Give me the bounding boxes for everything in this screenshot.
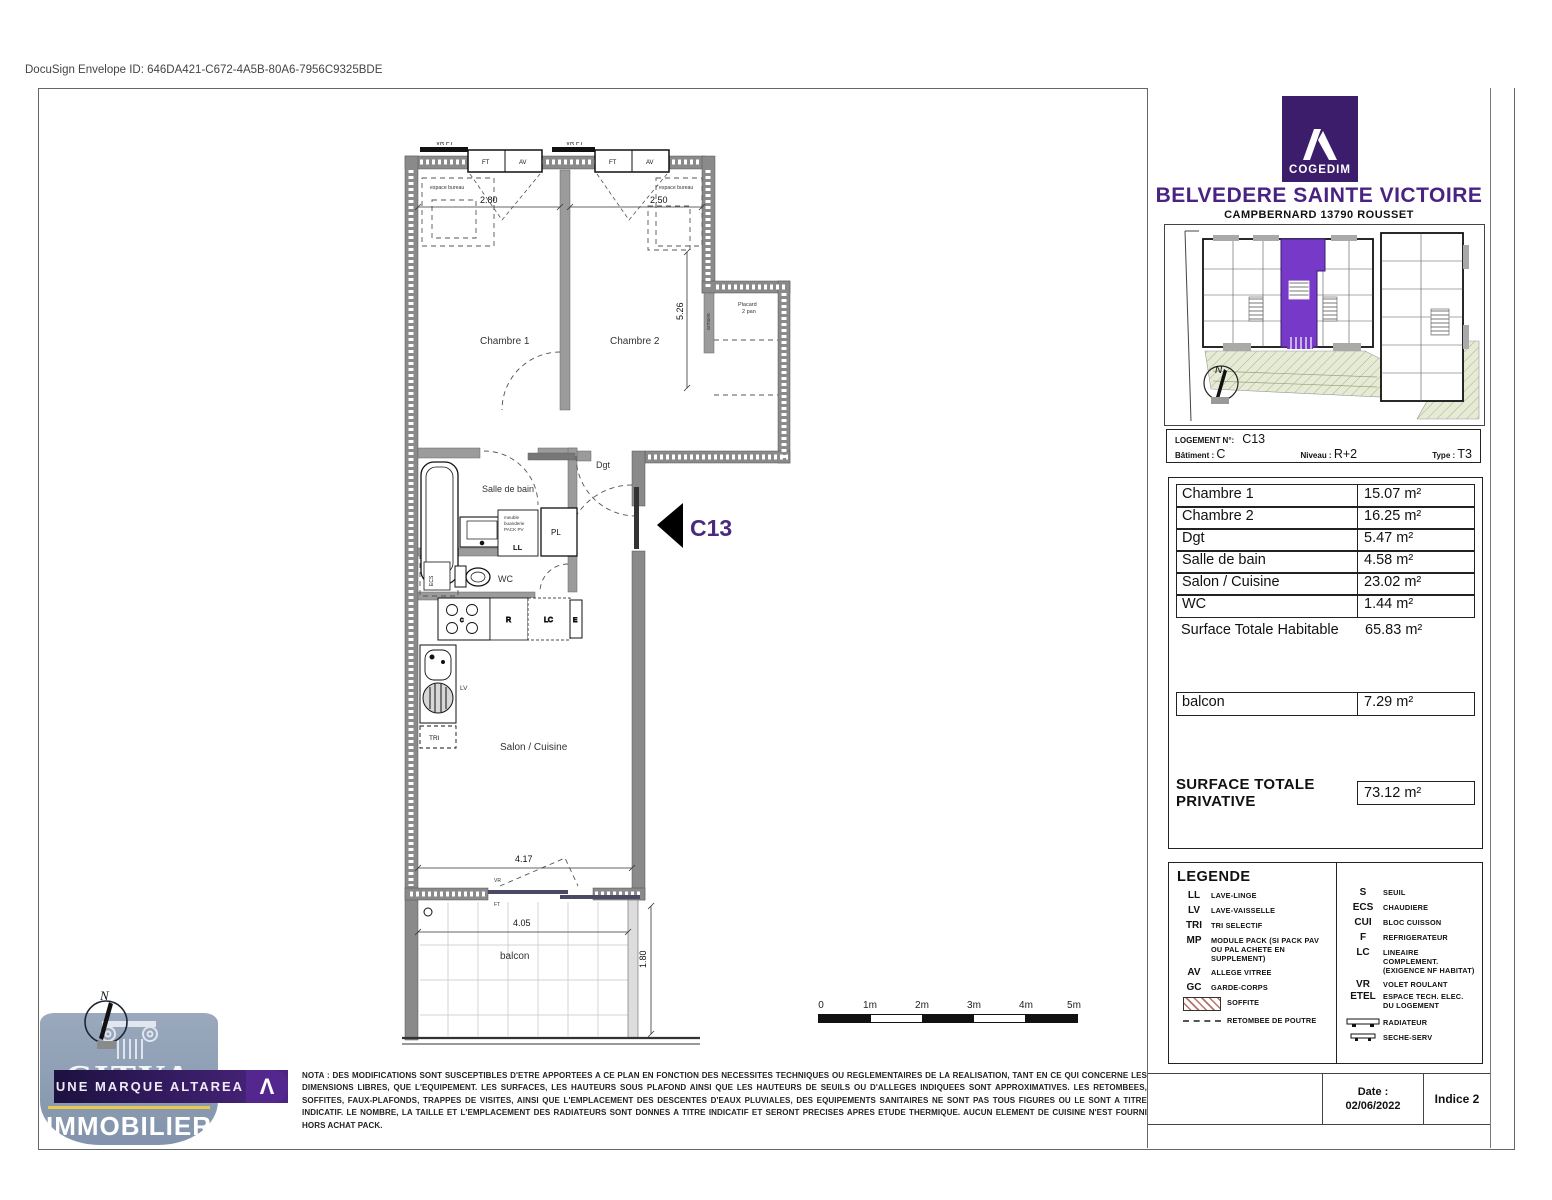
radiateur-icon <box>1346 1018 1380 1028</box>
tri-box: TRI <box>420 726 456 748</box>
ll-label: LL <box>513 543 523 552</box>
svg-text:TRI: TRI <box>429 735 440 742</box>
project-title: BELVEDERE SAINTE VICTOIRE <box>1148 184 1490 208</box>
docusign-envelope-id: DocuSign Envelope ID: 646DA421-C672-4A5B… <box>25 64 382 76</box>
niveau-value: R+2 <box>1334 447 1357 461</box>
wc-room-label: WC <box>498 574 513 584</box>
citya-gold-line <box>48 1106 210 1109</box>
legend-box: LEGENDE LLLAVE-LINGE LVLAVE-VAISSELLE TR… <box>1168 862 1483 1064</box>
surface-privative-label: SURFACE TOTALE PRIVATIVE <box>1176 776 1357 810</box>
retombee-dash-icon <box>1183 1020 1221 1022</box>
water-heater: ECS <box>424 562 450 590</box>
chambre1-label: Chambre 1 <box>480 336 530 347</box>
table-row: Salle de bain4.58 m² <box>1176 550 1475 574</box>
altarea-banner-text: UNE MARQUE ALTAREA <box>54 1070 246 1103</box>
logement-label: LOGEMENT N°: <box>1175 436 1234 445</box>
surface-habitable-label: Surface Totale Habitable <box>1176 620 1359 640</box>
cogedim-logo-word: COGEDIM <box>1289 164 1351 176</box>
type-label: Type : <box>1432 451 1455 460</box>
cogedim-logo: COGEDIM <box>1282 96 1358 182</box>
kitchen-units: C R LC E <box>438 598 582 640</box>
logement-value: C13 <box>1242 432 1265 446</box>
balcon-row: balcon 7.29 m² <box>1176 692 1475 716</box>
scale-bar: 0 1m 2m 3m 4m 5m <box>818 1000 1078 1023</box>
av-label-2: AV <box>646 160 654 166</box>
chambre2-label: Chambre 2 <box>610 336 660 347</box>
seche-serviette-label: SECHE-SERV <box>1383 1032 1432 1042</box>
areas-box: Chambre 115.07 m² Chambre 216.25 m² Dgt5… <box>1168 477 1483 849</box>
surface-habitable-value: 65.83 m² <box>1359 620 1475 640</box>
soffite-swatch-icon <box>1183 997 1221 1011</box>
panel-inner-border <box>1490 88 1491 1148</box>
indice-value: Indice 2 <box>1435 1092 1480 1106</box>
date-cell: Date : 02/06/2022 <box>1323 1074 1424 1124</box>
toilet <box>455 566 490 587</box>
altarea-banner: UNE MARQUE ALTAREA Λ <box>54 1070 288 1103</box>
soffite-label: SOFFITE <box>1227 997 1259 1007</box>
altarea-lambda-icon: Λ <box>246 1070 288 1103</box>
scale-bar-segments <box>818 1014 1078 1023</box>
espace-bureau-1: espace bureau <box>430 185 464 191</box>
unit-id-label: C13 <box>690 515 732 541</box>
r-label: R <box>506 617 511 624</box>
retombee-label: RETOMBEE DE POUTRE <box>1227 1015 1316 1025</box>
vr-ft-label-2: VR FT <box>566 142 584 147</box>
date-value: 02/06/2022 <box>1345 1099 1400 1113</box>
project-address: CAMPBERNARD 13790 ROUSSET <box>1148 209 1490 221</box>
surface-privative-row: SURFACE TOTALE PRIVATIVE 73.12 m² <box>1176 776 1475 810</box>
compass-north-label: N <box>99 988 110 1003</box>
keyplan-north-label: N <box>1215 365 1223 376</box>
type-value: T3 <box>1457 447 1472 461</box>
sdb-label: Salle de bain <box>482 484 534 494</box>
document-page: DocuSign Envelope ID: 646DA421-C672-4A5B… <box>0 0 1552 1200</box>
legend-title: LEGENDE <box>1177 869 1332 885</box>
placard-label-2: 2 pan <box>742 309 756 315</box>
entry-arrow <box>657 503 683 548</box>
batiment-label: Bâtiment : <box>1175 451 1214 460</box>
dgt-label: Dgt <box>596 460 611 470</box>
entry-door-leaf <box>634 487 639 549</box>
seche-serviette-icon <box>1350 1033 1376 1042</box>
vr-ft-label-1: VR FT <box>436 142 454 147</box>
plan-compass: N <box>76 986 136 1054</box>
dim-2-80: 2.80 <box>480 195 498 205</box>
dim-1-80: 1.80 <box>638 950 648 968</box>
floor-plan: VR FT FT AV VR FT FT AV espace bureau es… <box>398 142 810 1047</box>
dim-5-26: 5.26 <box>675 302 685 320</box>
svg-text:PACK PV: PACK PV <box>504 527 525 532</box>
table-row: Chambre 216.25 m² <box>1176 506 1475 530</box>
revision-empty-cell <box>1148 1074 1323 1124</box>
scale-bar-labels: 0 1m 2m 3m 4m 5m <box>818 1000 1078 1014</box>
vanity-sink <box>460 517 504 547</box>
av-label-1: AV <box>519 160 527 166</box>
placard-label-1: Placard <box>738 302 757 308</box>
pl-label: PL <box>551 528 561 537</box>
site-boundary <box>1185 231 1199 421</box>
balcon-value: 7.29 m² <box>1358 692 1475 716</box>
table-row: Dgt5.47 m² <box>1176 528 1475 552</box>
lv-label: LV <box>460 685 468 692</box>
radiateur-label: RADIATEUR <box>1383 1017 1427 1027</box>
svg-text:buanderie: buanderie <box>504 521 525 526</box>
legend-right-column: SSEUIL ECSCHAUDIERE CUIBLOC CUISSON FREF… <box>1337 863 1482 1063</box>
closet-pl: PL <box>541 508 577 556</box>
balcon-label: balcon <box>1176 692 1358 716</box>
nota-text: NOTA : DES MODIFICATIONS SONT SUSCEPTIBL… <box>302 1070 1147 1132</box>
key-plan: N <box>1164 224 1485 426</box>
ft-label-2: FT <box>609 160 617 166</box>
niveau-label: Niveau : <box>1300 451 1331 460</box>
citya-immobilier-word: IMMOBILIER <box>40 1111 218 1142</box>
lc-label: LC <box>544 617 553 624</box>
balcon-label: balcon <box>500 951 529 962</box>
window-bay-1: VR FT FT AV <box>420 142 542 220</box>
ecs-label: ECS <box>429 575 435 586</box>
dim-2-50: 2.50 <box>650 195 668 205</box>
ft-label-1: FT <box>482 160 490 166</box>
balcony <box>402 900 700 1044</box>
batiment-value: C <box>1216 447 1225 461</box>
balcony-sliding-door: VR FT <box>488 858 640 908</box>
title-block-panel: COGEDIM BELVEDERE SAINTE VICTOIRE CAMPBE… <box>1147 88 1514 1148</box>
table-row: Chambre 115.07 m² <box>1176 484 1475 508</box>
unit-info-box: LOGEMENT N°: C13 Bâtiment : C Niveau : R… <box>1166 429 1481 463</box>
kitchen-sink-column <box>420 645 456 723</box>
espace-bureau-2: espace bureau <box>659 185 693 191</box>
cogedim-lambda-icon <box>1298 126 1342 162</box>
table-row: Salon / Cuisine23.02 m² <box>1176 572 1475 596</box>
cui-label: C <box>460 618 464 624</box>
ft-balcony-label: FT <box>494 902 500 908</box>
washing-machine: meuble buanderie PACK PV LL <box>498 510 538 556</box>
salon-label: Salon / Cuisine <box>500 742 568 753</box>
armoire-label: armoire <box>706 313 712 330</box>
surface-privative-value: 73.12 m² <box>1357 781 1475 805</box>
legend-left-column: LEGENDE LLLAVE-LINGE LVLAVE-VAISSELLE TR… <box>1169 863 1337 1063</box>
svg-text:meuble: meuble <box>504 515 520 520</box>
e-label: E <box>573 617 578 624</box>
date-label: Date : <box>1358 1085 1389 1099</box>
table-row: WC1.44 m² <box>1176 594 1475 618</box>
dim-4-17: 4.17 <box>515 854 533 864</box>
revision-strip: Date : 02/06/2022 Indice 2 <box>1148 1073 1490 1125</box>
vr-balcony-label: VR <box>494 878 501 884</box>
dim-4-05: 4.05 <box>513 918 531 928</box>
surface-habitable-row: Surface Totale Habitable 65.83 m² <box>1176 620 1475 640</box>
indice-cell: Indice 2 <box>1424 1074 1490 1124</box>
building-right-wing <box>1381 233 1469 401</box>
